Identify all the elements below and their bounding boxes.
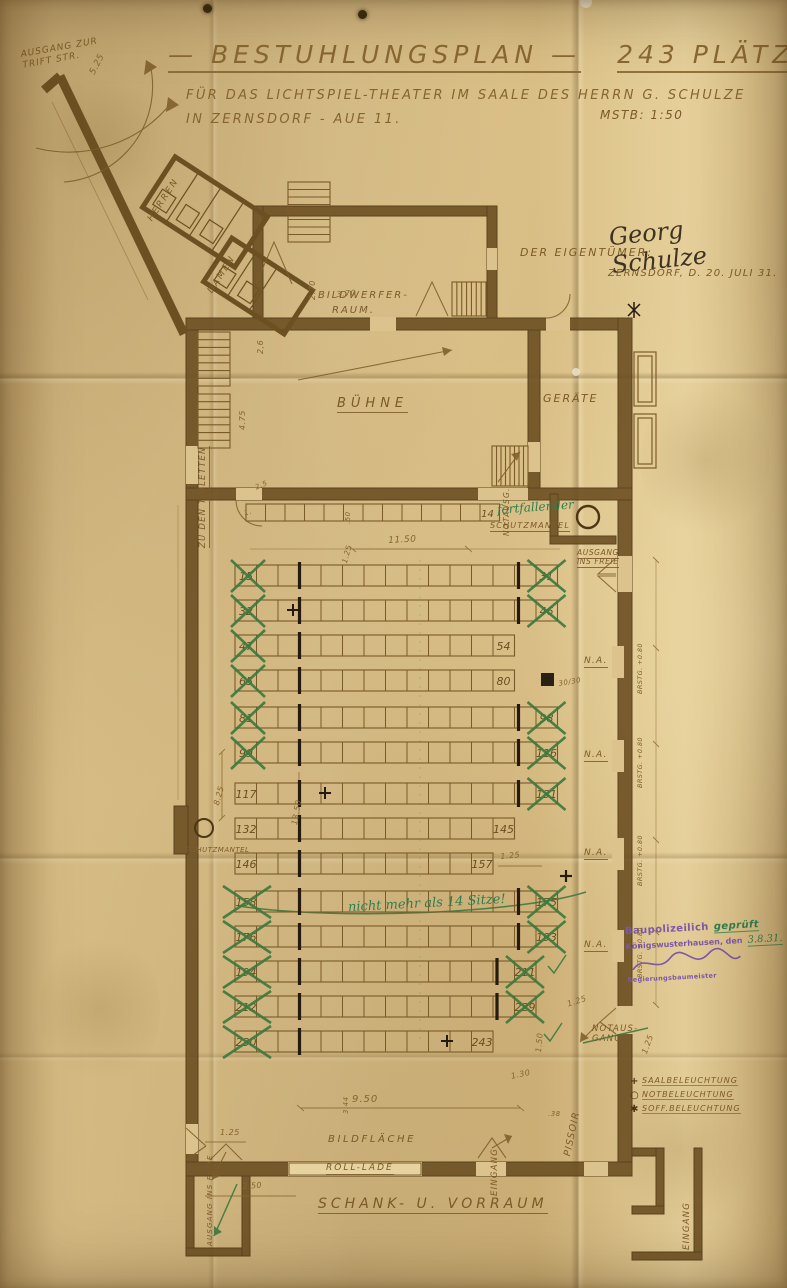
room-bildwerfer-2: RAUM. xyxy=(332,305,375,316)
stamp-date: 3.8.31. xyxy=(747,933,783,947)
dim-bl-250: 2.50 xyxy=(242,1181,262,1191)
ausgang-bottom-left: AUSGANG INS FREIE xyxy=(206,1154,214,1246)
seat-row: 132145 xyxy=(235,815,515,842)
seat-number-left: 146 xyxy=(236,858,257,871)
screen-rolllade: ROLL-LADE xyxy=(326,1163,394,1175)
eingang-right: EINGANG xyxy=(682,1202,692,1250)
right-wall-windows xyxy=(634,352,656,468)
notaus-line2: GANG xyxy=(592,1034,622,1044)
owner-place-date: ZERNSDORF, D. 20. JULI 31. xyxy=(608,268,778,279)
staircase xyxy=(288,182,330,242)
niche-brstg-label: BRSTG. +0.80 xyxy=(636,835,644,886)
legend-item-not: ○ NOTBELEUCHTUNG xyxy=(630,1088,741,1102)
scale-note: MSTB: 1:50 xyxy=(600,108,683,122)
dim-screen: 9.50 xyxy=(352,1094,378,1105)
staircase xyxy=(452,282,486,316)
title-seats: 243 PLÄTZE — xyxy=(617,40,787,73)
staircase xyxy=(198,394,230,448)
niche-brstg-label: BRSTG. +0.80 xyxy=(636,737,644,788)
dim-bw-w: 3.70 xyxy=(336,288,357,299)
dim-strip-h: .50 xyxy=(344,511,352,524)
dim-38: .38 xyxy=(548,1110,561,1118)
seat-number-left: 117 xyxy=(236,788,257,801)
seat-number-right: 157 xyxy=(472,858,493,871)
niche-na-label: N.A. xyxy=(584,848,608,860)
lighting-legend: + SAALBELEUCHTUNG ○ NOTBELEUCHTUNG ✱ SOF… xyxy=(630,1074,741,1116)
niche-na-label: N.A. xyxy=(584,940,608,952)
page-title: — BESTUHLUNGSPLAN —243 PLÄTZE — xyxy=(168,40,787,69)
asterisk-icon: ✱ xyxy=(630,1104,642,1115)
room-bildwerfer-1: BILDWERFER- xyxy=(318,290,409,301)
seat-row: 176193 xyxy=(223,921,566,953)
niche-na-label: N.A. xyxy=(584,656,608,668)
dim-bw-h: 2.70 xyxy=(308,280,317,300)
dim-aisle: 11.50 xyxy=(388,535,417,546)
seat-row: 146157 xyxy=(235,850,493,877)
legend-label-not: NOTBELEUCHTUNG xyxy=(642,1090,734,1100)
legend-label-soff: SOFF.BELEUCHTUNG xyxy=(642,1104,741,1114)
exit-toiletten: ZU DEN TOILETTEN xyxy=(198,446,210,548)
seat-row: 194211 xyxy=(223,956,544,988)
ins-freie-line2: INS FREIE xyxy=(577,557,619,568)
approval-stamp: Baupolizeilich geprüft Königswusterhause… xyxy=(624,914,784,984)
screen-bildflaeche: BILDFLÄCHE xyxy=(328,1134,416,1145)
title-subtitle-2: IN ZERNSDORF - AUE 11. xyxy=(186,112,402,127)
seat-number-right: 243 xyxy=(472,1036,493,1049)
seat-row: 3246 xyxy=(231,595,566,627)
dim-bl-125: 1.25 xyxy=(220,1128,240,1137)
seat-row: 212229 xyxy=(223,991,544,1023)
seat-row: 230243 xyxy=(223,1026,493,1058)
room-geraete: GERÄTE xyxy=(543,392,599,405)
dim-row-125: 1.25 xyxy=(500,850,521,861)
seat-row: 117131 xyxy=(235,778,566,810)
exit-ins-freie-top: AUSGANG INS FREIE xyxy=(577,548,619,566)
title-subtitle-1: FÜR DAS LICHTSPIEL-THEATER IM SAALE DES … xyxy=(186,88,746,103)
seat-row: 6580 xyxy=(231,665,515,697)
seat-number-left: 132 xyxy=(236,823,257,836)
legend-item-soff: ✱ SOFF.BELEUCHTUNG xyxy=(630,1102,741,1116)
eingang-bottom: EINGANG xyxy=(490,1148,500,1196)
dim-stage-h: 4.75 xyxy=(238,410,247,430)
legend-item-saal: + SAALBELEUCHTUNG xyxy=(630,1074,741,1088)
seat-number-right: 54 xyxy=(497,640,511,653)
niche-na-label: N.A. xyxy=(584,750,608,762)
legend-label-saal: SAALBELEUCHTUNG xyxy=(642,1076,738,1086)
seat-row: 4754 xyxy=(231,630,515,662)
notaus-line1: NOTAUS- xyxy=(592,1024,638,1034)
circle-icon: ○ xyxy=(630,1090,642,1101)
seat-number-right: 80 xyxy=(497,675,511,688)
front-strip-count: 14 xyxy=(481,509,494,520)
seat-row: 1531 xyxy=(231,560,566,592)
plus-icon: + xyxy=(630,1076,642,1087)
notausgang-bottom: NOTAUS- GANG xyxy=(592,1024,638,1044)
seat-row: 8198 xyxy=(231,702,566,734)
seat-number-right: 145 xyxy=(493,823,514,836)
niche-brstg-label: BRSTG. +0.80 xyxy=(636,927,644,978)
title-main: — BESTUHLUNGSPLAN — xyxy=(168,40,581,73)
schutzmantel-left: SCHUTZMANTEL xyxy=(186,846,249,854)
niche-brstg-label: BRSTG. +0.80 xyxy=(636,643,644,694)
dim-exit-150: 1.50 xyxy=(534,1032,545,1053)
dim-2-6: 2,6 xyxy=(256,340,265,354)
staircase xyxy=(492,446,528,486)
seat-row: 99116 xyxy=(231,737,566,769)
room-schank: SCHANK- U. VORRAUM xyxy=(318,1196,548,1214)
walls xyxy=(174,206,702,1260)
dimension-lines xyxy=(52,102,659,1196)
notausg-small: NOTAUSG. xyxy=(502,487,511,536)
staircase xyxy=(198,332,230,386)
ventilation-square xyxy=(541,673,554,686)
room-buehne: BÜHNE xyxy=(337,396,408,413)
front-seat-strip: 14 xyxy=(246,504,500,521)
green-annotations xyxy=(214,892,648,1236)
dim-344: 3.44 xyxy=(342,1096,350,1114)
blueprint-paper: 1531324647546580819899116117131132145146… xyxy=(0,0,787,1288)
